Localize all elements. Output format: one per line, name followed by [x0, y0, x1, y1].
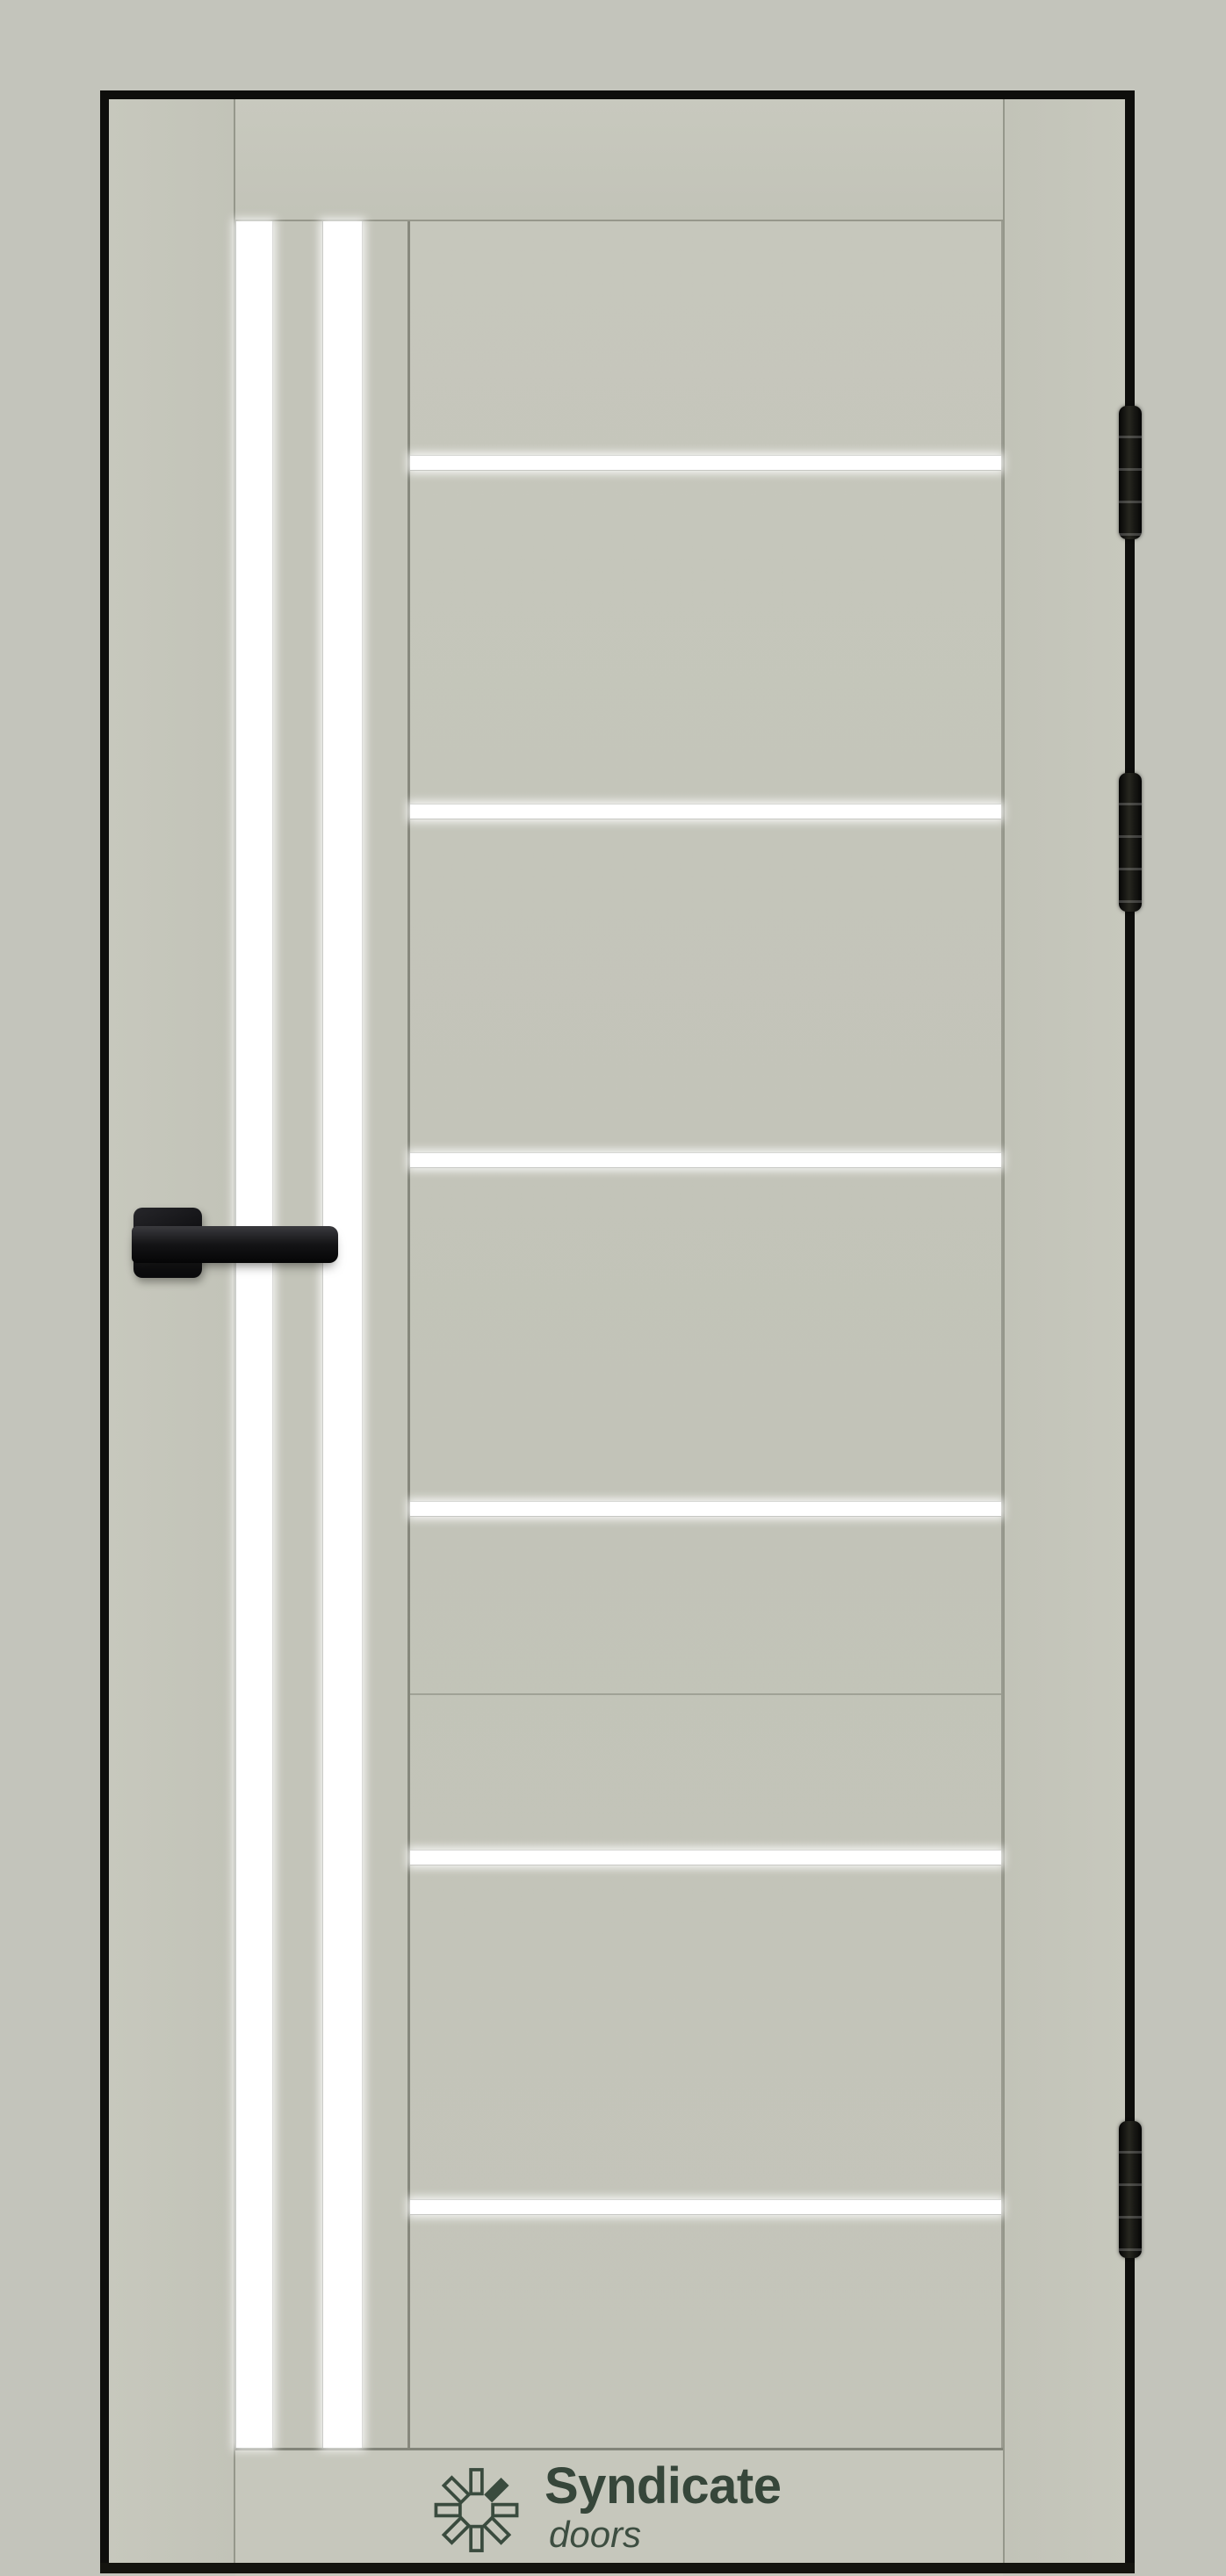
pinwheel-flower-icon: [432, 2468, 521, 2554]
horizontal-glass-stripe: [410, 2199, 1001, 2215]
horizontal-glass-stripe: [410, 1850, 1001, 1865]
door-top-rail: [235, 99, 1003, 221]
door-frame-top: [100, 90, 1135, 99]
panel-seam-line: [410, 1693, 1001, 1695]
vertical-glass-column: [235, 221, 407, 2448]
horizontal-glass-stripe: [410, 1501, 1001, 1517]
door-right-stile: [1003, 99, 1127, 2573]
vertical-glass-stripe-2: [322, 221, 363, 2448]
door-leaf: [109, 99, 1125, 2573]
door-hinge: [1119, 773, 1142, 912]
brand-name: Syndicate: [544, 2459, 782, 2514]
vertical-glass-stripe-1: [235, 221, 273, 2448]
brand-logo: Syndicate doors: [432, 2459, 845, 2566]
horizontal-glass-stripe: [410, 804, 1001, 819]
door-handle-lever: [132, 1226, 338, 1263]
product-photo-background: { "page": { "background_color": "#c3c4bb…: [0, 0, 1226, 2573]
brand-tagline: doors: [549, 2515, 641, 2555]
door-left-stile: [109, 99, 235, 2573]
glass-panel: [407, 221, 1003, 2448]
horizontal-glass-stripe: [410, 455, 1001, 471]
door-hinge: [1119, 2121, 1142, 2258]
horizontal-glass-stripe: [410, 1152, 1001, 1168]
door-hinge: [1119, 406, 1142, 539]
door-frame-left: [100, 90, 109, 2573]
